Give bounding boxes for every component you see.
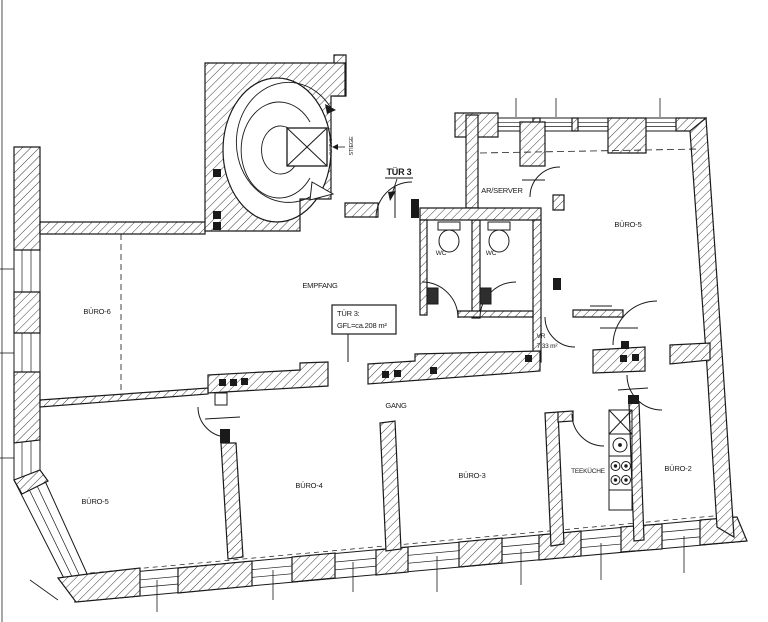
room-label-wc-left: WC bbox=[436, 250, 447, 257]
room-label-vr: VR bbox=[537, 333, 546, 340]
room-label-wc-right: WC bbox=[486, 250, 497, 257]
room-label-buero6: BÜRO-6 bbox=[83, 307, 110, 316]
buero5-bottom-jamb bbox=[215, 393, 227, 405]
room-label-empfang: EMPFANG bbox=[302, 281, 338, 290]
room-label-buero5-bottom: BÜRO-5 bbox=[81, 497, 108, 506]
stair-label: STIEGE bbox=[349, 136, 355, 156]
room-label-buero2: BÜRO-2 bbox=[664, 464, 691, 473]
floorplan-drawing: AUFZUG STIEGE bbox=[0, 0, 768, 622]
room-label-buero4: BÜRO-4 bbox=[295, 481, 322, 490]
room-label-gang: GANG bbox=[385, 401, 407, 410]
room-label-vr-area: 7.33 m² bbox=[537, 343, 559, 350]
room-label-buero5-top: BÜRO-5 bbox=[614, 220, 641, 229]
room-label-ar-server: AR/SERVER bbox=[481, 186, 523, 195]
nw-interior-wall bbox=[40, 222, 205, 234]
floorplan-page: AUFZUG STIEGE bbox=[0, 0, 768, 622]
washbasin-icon bbox=[427, 288, 438, 304]
tuer3-jamb bbox=[411, 199, 419, 218]
info-box-line1: TÜR 3: bbox=[337, 309, 360, 318]
corridor-wall-right-b bbox=[670, 343, 710, 364]
room-label-buero3: BÜRO-3 bbox=[458, 471, 485, 480]
wc-top-wall bbox=[420, 208, 541, 220]
tuer3-door-label: TÜR 3 bbox=[386, 167, 411, 177]
info-box: TÜR 3: GFL=ca.208 m² bbox=[332, 305, 396, 334]
room-label-teekueche: TEEKÜCHE bbox=[571, 467, 606, 475]
elevator-label: AUFZUG bbox=[328, 138, 333, 156]
info-box-line2: GFL=ca.208 m² bbox=[337, 321, 387, 330]
washbasin-icon bbox=[480, 288, 491, 304]
